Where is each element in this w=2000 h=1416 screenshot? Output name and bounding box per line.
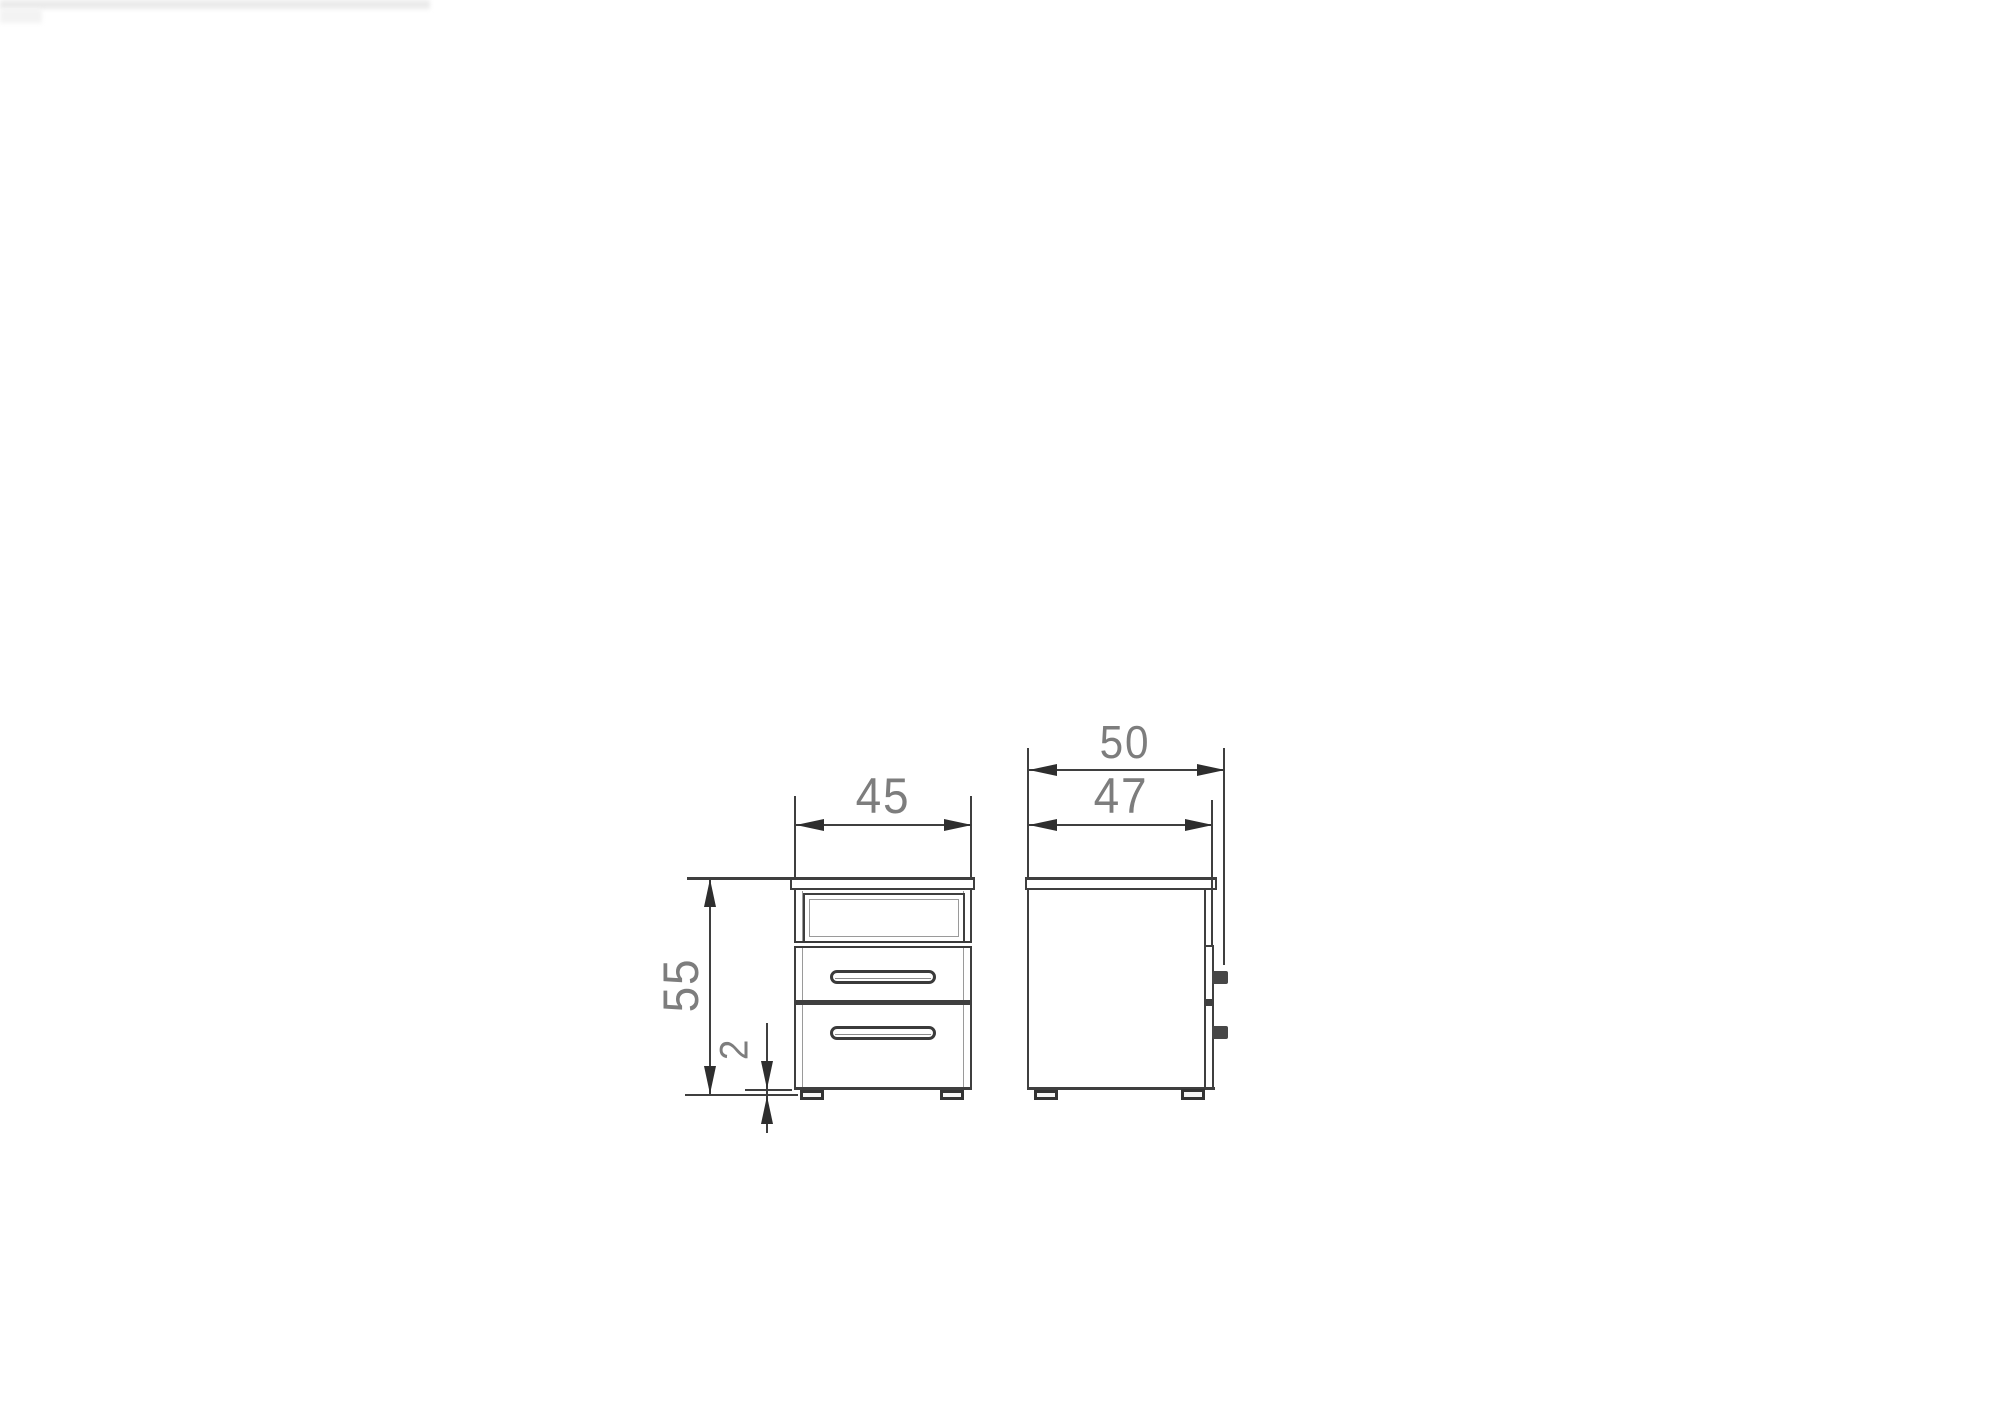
extension-line <box>1223 748 1225 965</box>
cabinet-left-side <box>794 889 796 1089</box>
arrowhead-down-icon <box>704 1066 716 1094</box>
floor-extension-line <box>685 1094 798 1096</box>
front-height-dim-label: 55 <box>652 958 710 1013</box>
side-overall-depth-dim-label: 50 <box>1100 715 1151 769</box>
niche-inner-outline <box>809 899 959 937</box>
top-panel-left-cap <box>790 877 792 890</box>
side-front-foot <box>1181 1089 1205 1100</box>
top-panel-right-cap <box>973 877 975 890</box>
arrowhead-right-icon <box>944 819 972 831</box>
shelf-edge <box>794 941 972 948</box>
drawer2-handle <box>830 1026 936 1040</box>
arrowhead-down-icon <box>761 1061 773 1089</box>
cabinet-top-line <box>1025 877 1217 880</box>
drawer-front-face <box>1212 946 1214 1089</box>
side-back-edge <box>1027 889 1029 1089</box>
extension-line <box>794 796 796 878</box>
arrowhead-left-icon <box>796 819 824 831</box>
drawer1-handle-highlight <box>835 974 931 979</box>
front-right-foot <box>940 1090 964 1100</box>
drawer2-handle-highlight <box>835 1030 931 1035</box>
front-left-foot <box>800 1090 824 1100</box>
side-body-depth-dim-label: 47 <box>1094 767 1149 825</box>
arrowhead-left-icon <box>1029 819 1057 831</box>
cabinet-top-underline <box>1025 888 1217 890</box>
arrowhead-left-icon <box>1029 764 1057 776</box>
arrowhead-right-icon <box>1197 764 1225 776</box>
arrowhead-up-icon <box>761 1096 773 1124</box>
scan-artifact-2 <box>0 9 42 23</box>
foot-top-tick <box>745 1089 792 1091</box>
drawer-gap-mark <box>1204 999 1214 1006</box>
drawer2-handle-profile <box>1212 1026 1228 1039</box>
extension-line <box>970 796 972 878</box>
drawer1-handle-profile <box>1212 971 1228 984</box>
cabinet-top-underline <box>790 888 975 890</box>
scan-artifact <box>0 0 430 9</box>
cabinet-right-side <box>970 889 972 1089</box>
arrowhead-right-icon <box>1185 819 1213 831</box>
cabinet-top-line <box>687 877 975 880</box>
front-width-dim-label: 45 <box>856 767 911 825</box>
top-panel-right-cap <box>1215 877 1217 890</box>
side-back-foot <box>1034 1090 1058 1100</box>
arrowhead-up-icon <box>704 879 716 907</box>
drawer-separator <box>794 1000 972 1005</box>
drawing-canvas: 45 55 <box>0 0 2000 1416</box>
foot-height-dim-label: 2 <box>713 1038 758 1060</box>
side-front-body-edge <box>1204 889 1206 1089</box>
extension-line <box>1211 800 1213 946</box>
drawer1-handle <box>830 970 936 984</box>
